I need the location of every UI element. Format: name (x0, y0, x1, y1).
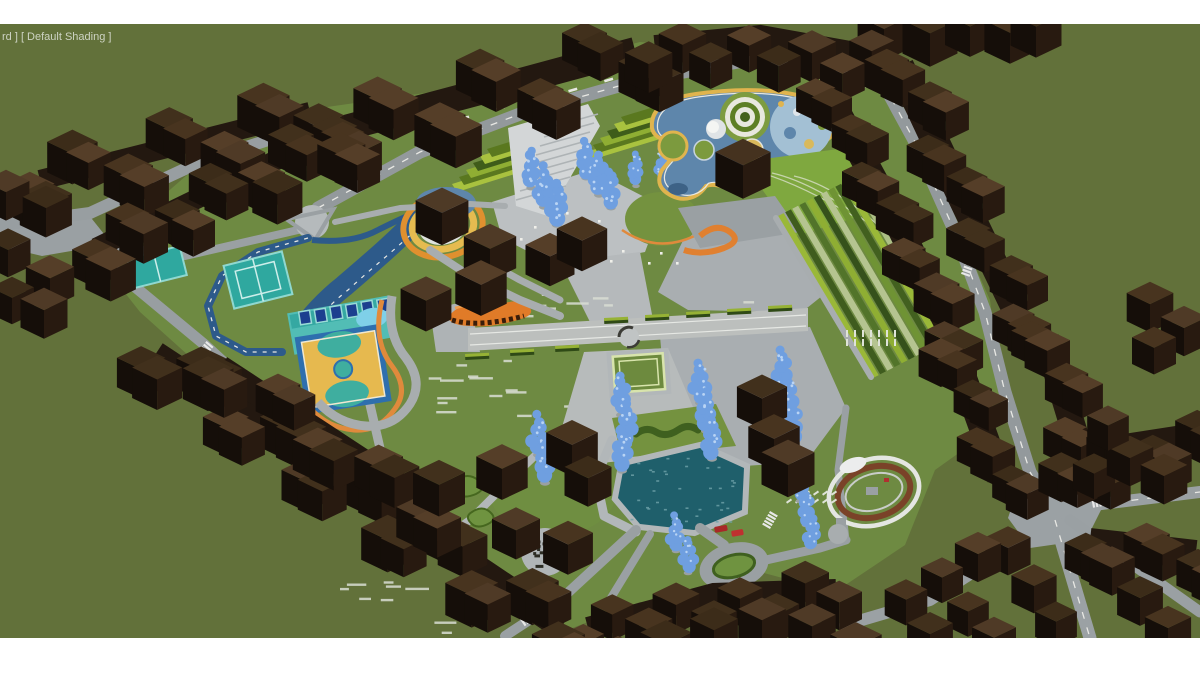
svg-text:rd ] [ Default Shading ]: rd ] [ Default Shading ] (2, 31, 111, 43)
